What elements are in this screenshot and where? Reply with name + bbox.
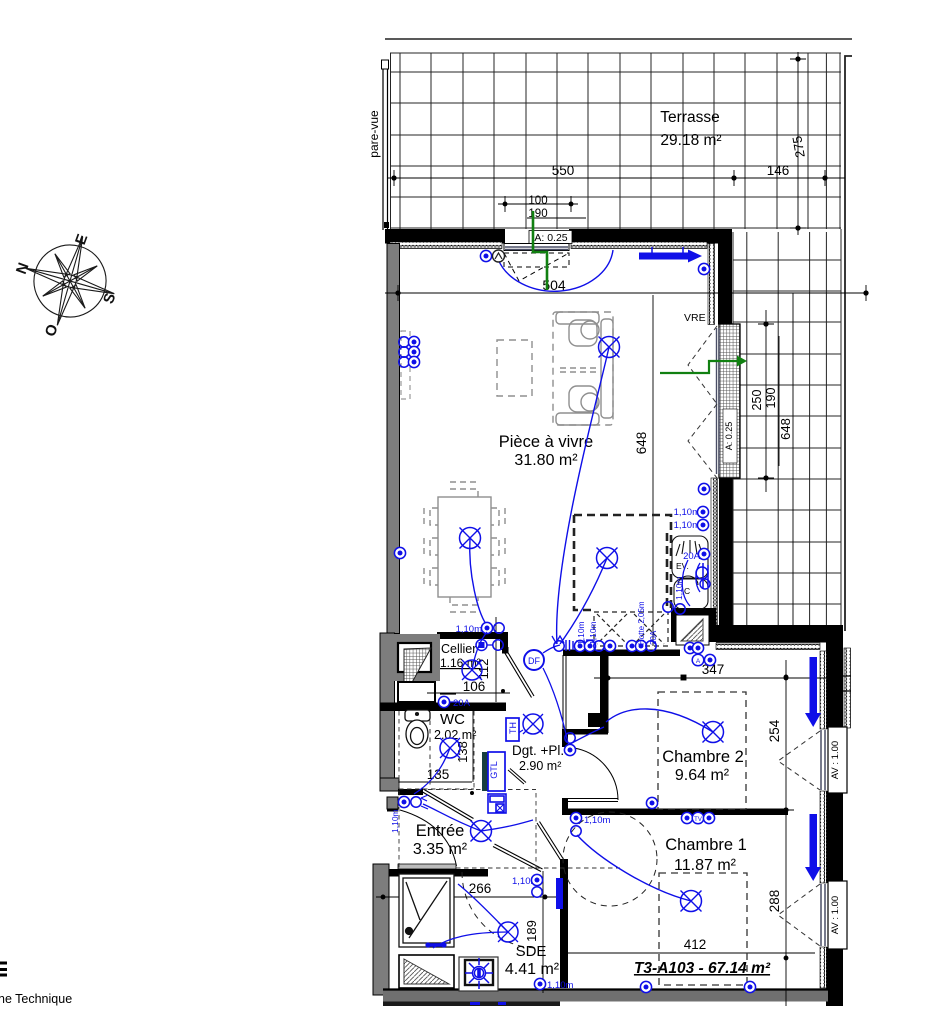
svg-text:Pièce à vivre: Pièce à vivre: [499, 433, 593, 451]
svg-text:146: 146: [767, 163, 790, 178]
svg-text:AV : 1.00: AV : 1.00: [830, 741, 841, 779]
svg-text:9.64 m²: 9.64 m²: [675, 767, 730, 784]
svg-text:WC: WC: [440, 711, 465, 728]
svg-text:T3-A103 - 67.14 m²: T3-A103 - 67.14 m²: [634, 960, 771, 977]
svg-text:A: A: [696, 658, 701, 665]
svg-text:ne Technique: ne Technique: [0, 992, 72, 1006]
svg-text:2.90 m²: 2.90 m²: [519, 759, 561, 773]
svg-text:Hotte 2,05m: Hotte 2,05m: [637, 601, 646, 645]
svg-text:Terrasse: Terrasse: [660, 109, 719, 126]
svg-text:1,10m: 1,10m: [674, 507, 700, 518]
svg-text:250: 250: [750, 390, 764, 411]
svg-text:550: 550: [552, 163, 575, 178]
svg-text:648: 648: [778, 418, 793, 440]
svg-text:29.18 m²: 29.18 m²: [660, 132, 721, 149]
svg-text:A: 0.25: A: 0.25: [724, 422, 734, 451]
svg-text:138: 138: [455, 741, 470, 763]
svg-text:1,10m: 1,10m: [390, 809, 400, 833]
svg-text:31.80 m²: 31.80 m²: [514, 452, 578, 469]
svg-text:TV: TV: [694, 817, 702, 823]
svg-text:C: C: [684, 586, 690, 596]
svg-text:11.87 m²: 11.87 m²: [674, 857, 737, 874]
svg-text:AV : 1.00: AV : 1.00: [830, 896, 841, 934]
svg-text:Entrée: Entrée: [416, 822, 465, 840]
svg-text:Dgt. +Pl.: Dgt. +Pl.: [512, 743, 564, 758]
svg-text:412: 412: [684, 937, 707, 952]
svg-text:648: 648: [634, 432, 649, 455]
svg-text:190: 190: [528, 208, 547, 220]
svg-text:189: 189: [524, 920, 539, 942]
svg-text:20A: 20A: [453, 698, 471, 709]
svg-text:TH: TH: [508, 722, 518, 734]
svg-text:1,10m: 1,10m: [576, 621, 586, 645]
svg-text:1,10m: 1,10m: [456, 624, 482, 635]
svg-text:Chambre 2: Chambre 2: [662, 748, 744, 766]
svg-text:Chambre 1: Chambre 1: [665, 836, 747, 854]
svg-text:254: 254: [767, 719, 782, 742]
svg-text:SDE: SDE: [516, 943, 547, 960]
svg-text:20A: 20A: [649, 630, 658, 645]
svg-text:100: 100: [528, 195, 547, 207]
svg-text:1,10m: 1,10m: [674, 576, 684, 600]
svg-text:190: 190: [764, 388, 778, 409]
svg-text:106: 106: [463, 679, 486, 694]
svg-text:1,10m: 1,10m: [674, 520, 700, 531]
svg-text:3.35 m²: 3.35 m²: [413, 841, 468, 858]
svg-text:1,10m: 1,10m: [584, 815, 610, 826]
svg-text:A: 0.25: A: 0.25: [534, 232, 567, 244]
svg-text:VRE: VRE: [684, 312, 706, 324]
svg-text:DF: DF: [528, 656, 540, 666]
svg-text:Cellier: Cellier: [441, 642, 476, 656]
svg-text:4.41 m²: 4.41 m²: [505, 961, 560, 978]
svg-text:GTL: GTL: [489, 761, 499, 779]
svg-text:1,10m: 1,10m: [588, 621, 598, 645]
svg-text:266: 266: [469, 881, 492, 896]
svg-text:1,10m: 1,10m: [547, 980, 573, 991]
svg-text:pare-vue: pare-vue: [367, 110, 381, 158]
svg-text:288: 288: [767, 890, 782, 913]
